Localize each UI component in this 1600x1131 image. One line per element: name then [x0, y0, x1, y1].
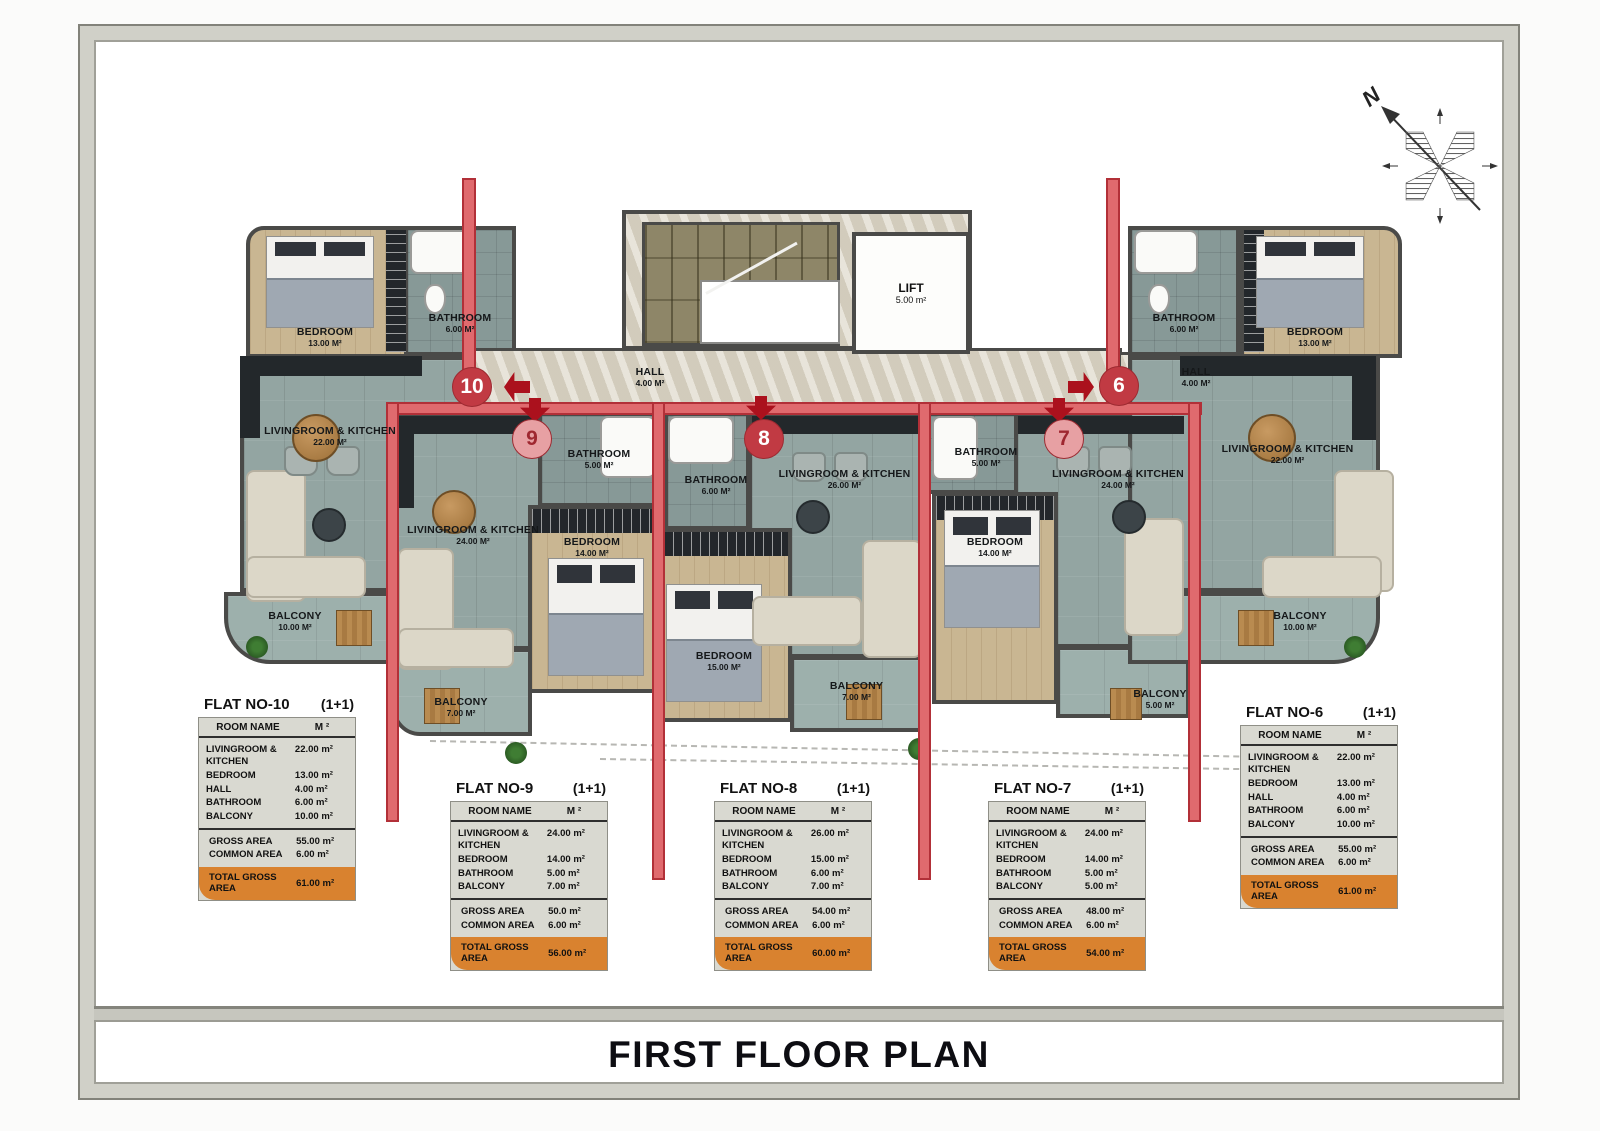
summary-row: GROSS AREA54.00 m²	[725, 906, 867, 918]
lift-room: LIFT 5.00 m²	[852, 232, 970, 354]
wardrobe-icon	[664, 532, 788, 556]
floor-plan-sheet: FIRST FLOOR PLAN N LIFT 5.00 m²	[0, 0, 1600, 1131]
total-gross-row: TOTAL GROSS AREA54.00 m²	[989, 937, 1145, 970]
room-cell: COMMON AREA	[1251, 857, 1338, 869]
label-balcony-flat9: BALCONY7.00 m²	[392, 696, 530, 718]
coffee-table-icon	[312, 508, 346, 542]
room-cell: BATHROOM	[1248, 805, 1337, 817]
room-row: BALCONY10.00 m²	[1248, 819, 1393, 831]
value-cell: 24.00 m²	[1085, 828, 1141, 853]
label-livingroom-flat7: LIVINGROOM & KITCHEN24.00 m²	[1038, 468, 1198, 490]
toilet-icon	[1148, 284, 1170, 314]
flat-number-label: FLAT NO-7	[994, 780, 1071, 797]
flat-table-rows: LIVINGROOM & KITCHEN22.00 m²BEDROOM13.00…	[1241, 746, 1397, 836]
flat-table-rows: LIVINGROOM & KITCHEN24.00 m²BEDROOM14.00…	[989, 822, 1145, 898]
label-bedroom-flat8: BEDROOM15.00 m²	[664, 650, 784, 672]
kitchen-counter-icon	[1018, 416, 1184, 434]
room-row: BALCONY10.00 m²	[206, 811, 351, 823]
value-cell: 6.00 m²	[296, 849, 351, 861]
value-cell: 55.00 m²	[1338, 844, 1393, 856]
room-name-header: ROOM NAME	[455, 806, 545, 817]
label-bathroom-flat9: BATHROOM5.00 m²	[538, 448, 660, 470]
room-row: LIVINGROOM & KITCHEN26.00 m²	[722, 828, 867, 853]
room-cell: GROSS AREA	[1251, 844, 1338, 856]
value-cell: 54.00 m²	[1086, 948, 1141, 959]
page-title: FIRST FLOOR PLAN	[94, 1034, 1504, 1076]
summary-row: COMMON AREA6.00 m²	[209, 849, 351, 861]
label-hall-flat6: HALL4.00 m²	[1146, 366, 1246, 388]
value-cell: 26.00 m²	[811, 828, 867, 853]
room-row: LIVINGROOM & KITCHEN22.00 m²	[206, 744, 351, 769]
room-row: LIVINGROOM & KITCHEN24.00 m²	[996, 828, 1141, 853]
value-cell: 24.00 m²	[547, 828, 603, 853]
flat-table-box: ROOM NAMEM ²LIVINGROOM & KITCHEN22.00 m²…	[198, 717, 356, 901]
flat-number-label: FLAT NO-8	[720, 780, 797, 797]
room-cell: LIVINGROOM & KITCHEN	[206, 744, 295, 769]
wardrobe-icon	[532, 509, 654, 533]
room-cell: BATHROOM	[458, 868, 547, 880]
room-row: BEDROOM13.00 m²	[1248, 778, 1393, 790]
value-cell: 5.00 m²	[1085, 881, 1141, 893]
label-bathroom-flat7: BATHROOM5.00 m²	[930, 446, 1042, 468]
area-summary: GROSS AREA55.00 m²COMMON AREA6.00 m²	[1241, 836, 1397, 875]
room-cell: LIVINGROOM & KITCHEN	[996, 828, 1085, 853]
label-balcony-flat7: BALCONY5.00 m²	[1090, 688, 1230, 710]
compass-icon: N	[1340, 78, 1510, 228]
label-bedroom-flat9: BEDROOM14.00 m²	[528, 536, 656, 558]
label-balcony-flat10: BALCONY10.00 m²	[195, 610, 395, 632]
value-cell: 15.00 m²	[811, 854, 867, 866]
room-name-header: ROOM NAME	[993, 806, 1083, 817]
flat-table-box: ROOM NAMEM ²LIVINGROOM & KITCHEN26.00 m²…	[714, 801, 872, 971]
flat-badge-10: 10	[452, 367, 492, 407]
unit-header: M ²	[809, 806, 867, 817]
summary-row: COMMON AREA6.00 m²	[1251, 857, 1393, 869]
flat-table-box: ROOM NAMEM ²LIVINGROOM & KITCHEN22.00 m²…	[1240, 725, 1398, 909]
flat-table-header: ROOM NAMEM ²	[715, 802, 871, 822]
room-cell: GROSS AREA	[725, 906, 812, 918]
room-cell: GROSS AREA	[461, 906, 548, 918]
room-row: BATHROOM6.00 m²	[1248, 805, 1393, 817]
room-row: LIVINGROOM & KITCHEN22.00 m²	[1248, 752, 1393, 777]
room-cell: COMMON AREA	[725, 920, 812, 932]
unit-header: M ²	[545, 806, 603, 817]
flat-badge-8: 8	[744, 419, 784, 459]
value-cell: 10.00 m²	[1337, 819, 1393, 831]
sofa-icon	[862, 540, 922, 658]
flat-info-table-10: FLAT NO-10(1+1)ROOM NAMEM ²LIVINGROOM & …	[198, 696, 356, 901]
room-cell: TOTAL GROSS AREA	[461, 942, 548, 964]
room-row: BEDROOM15.00 m²	[722, 854, 867, 866]
value-cell: 5.00 m²	[547, 868, 603, 880]
total-gross-row: TOTAL GROSS AREA61.00 m²	[199, 867, 355, 900]
value-cell: 50.0 m²	[548, 906, 603, 918]
flat-number-label: FLAT NO-6	[1246, 704, 1323, 721]
flat-table-rows: LIVINGROOM & KITCHEN26.00 m²BEDROOM15.00…	[715, 822, 871, 898]
value-cell: 13.00 m²	[295, 770, 351, 782]
value-cell: 56.00 m²	[548, 948, 603, 959]
kitchen-counter-icon	[1352, 356, 1376, 440]
room-cell: BALCONY	[206, 811, 295, 823]
room-cell: BALCONY	[1248, 819, 1337, 831]
value-cell: 6.00 m²	[1338, 857, 1393, 869]
area-summary: GROSS AREA55.00 m²COMMON AREA6.00 m²	[199, 828, 355, 867]
value-cell: 6.00 m²	[812, 920, 867, 932]
stair-landing	[700, 280, 840, 344]
bed-icon	[266, 236, 374, 328]
flat-table-header: ROOM NAMEM ²	[989, 802, 1145, 822]
flat-table-title: FLAT NO-9(1+1)	[450, 780, 608, 801]
flat-badge-9: 9	[512, 419, 552, 459]
room-row: BEDROOM13.00 m²	[206, 770, 351, 782]
room-row: BALCONY7.00 m²	[458, 881, 603, 893]
bed-icon	[548, 558, 644, 676]
room-cell: BALCONY	[458, 881, 547, 893]
room-row: BATHROOM6.00 m²	[722, 868, 867, 880]
room-cell: BEDROOM	[996, 854, 1085, 866]
room-cell: LIVINGROOM & KITCHEN	[1248, 752, 1337, 777]
coffee-table-icon	[1112, 500, 1146, 534]
label-balcony-flat6: BALCONY10.00 m²	[1215, 610, 1385, 632]
flat-badge-7: 7	[1044, 419, 1084, 459]
sofa-icon	[1262, 556, 1382, 598]
room-cell: BATHROOM	[722, 868, 811, 880]
flat-table-title: FLAT NO-7(1+1)	[988, 780, 1146, 801]
bathtub-icon	[1134, 230, 1198, 274]
value-cell: 4.00 m²	[1337, 792, 1393, 804]
label-balcony-flat8: BALCONY7.00 m²	[790, 680, 923, 702]
value-cell: 48.00 m²	[1086, 906, 1141, 918]
room-cell: COMMON AREA	[461, 920, 548, 932]
label-livingroom-flat10: LIVINGROOM & KITCHEN22.00 m²	[230, 425, 430, 447]
room-name-header: ROOM NAME	[1245, 730, 1335, 741]
value-cell: 61.00 m²	[296, 878, 351, 889]
bathtub-icon	[668, 416, 734, 464]
value-cell: 60.00 m²	[812, 948, 867, 959]
value-cell: 10.00 m²	[295, 811, 351, 823]
room-cell: HALL	[1248, 792, 1337, 804]
flat-info-table-9: FLAT NO-9(1+1)ROOM NAMEM ²LIVINGROOM & K…	[450, 780, 608, 971]
room-cell: TOTAL GROSS AREA	[1251, 880, 1338, 902]
lift-area: 5.00 m²	[896, 295, 927, 305]
room-cell: BATHROOM	[206, 797, 295, 809]
value-cell: 22.00 m²	[1337, 752, 1393, 777]
flat-number-label: FLAT NO-10	[204, 696, 290, 713]
room-cell: BALCONY	[722, 881, 811, 893]
label-bathroom-flat6: BATHROOM6.00 m²	[1128, 312, 1240, 334]
room-cell: BEDROOM	[458, 854, 547, 866]
value-cell: 6.00 m²	[295, 797, 351, 809]
flat-table-title: FLAT NO-6(1+1)	[1240, 704, 1398, 725]
summary-row: GROSS AREA48.00 m²	[999, 906, 1141, 918]
room-cell: TOTAL GROSS AREA	[725, 942, 812, 964]
bed-icon	[666, 584, 762, 702]
summary-row: GROSS AREA55.00 m²	[1251, 844, 1393, 856]
flat-table-box: ROOM NAMEM ²LIVINGROOM & KITCHEN24.00 m²…	[450, 801, 608, 971]
label-livingroom-flat6: LIVINGROOM & KITCHEN22.00 m²	[1200, 443, 1375, 465]
kitchen-counter-icon	[240, 356, 422, 376]
room-row: BATHROOM5.00 m²	[996, 868, 1141, 880]
red-wall	[386, 402, 1202, 415]
room-cell: COMMON AREA	[209, 849, 296, 861]
room-cell: COMMON AREA	[999, 920, 1086, 932]
coffee-table-icon	[796, 500, 830, 534]
label-livingroom-flat8: LIVINGROOM & KITCHEN26.00 m²	[762, 468, 927, 490]
room-row: HALL4.00 m²	[206, 784, 351, 796]
room-cell: GROSS AREA	[209, 836, 296, 848]
label-bedroom-flat6: BEDROOM13.00 m²	[1235, 326, 1395, 348]
flat-type-label: (1+1)	[321, 696, 354, 712]
room-cell: BEDROOM	[722, 854, 811, 866]
label-bathroom-flat10: BATHROOM6.00 m²	[404, 312, 516, 334]
room-row: BALCONY7.00 m²	[722, 881, 867, 893]
room-name-header: ROOM NAME	[203, 722, 293, 733]
room-row: BALCONY5.00 m²	[996, 881, 1141, 893]
label-bathroom-flat8: BATHROOM6.00 m²	[660, 474, 772, 496]
room-row: BEDROOM14.00 m²	[458, 854, 603, 866]
room-cell: BALCONY	[996, 881, 1085, 893]
bed-icon	[1256, 236, 1364, 328]
value-cell: 54.00 m²	[812, 906, 867, 918]
value-cell: 4.00 m²	[295, 784, 351, 796]
flat-number-label: FLAT NO-9	[456, 780, 533, 797]
label-bedroom-flat10: BEDROOM13.00 m²	[250, 326, 400, 348]
room-cell: TOTAL GROSS AREA	[209, 872, 296, 894]
value-cell: 61.00 m²	[1338, 886, 1393, 897]
flat-info-table-8: FLAT NO-8(1+1)ROOM NAMEM ²LIVINGROOM & K…	[714, 780, 872, 971]
summary-row: COMMON AREA6.00 m²	[461, 920, 603, 932]
room-row: BATHROOM6.00 m²	[206, 797, 351, 809]
flat-type-label: (1+1)	[1111, 780, 1144, 796]
summary-row: COMMON AREA6.00 m²	[725, 920, 867, 932]
flat-table-header: ROOM NAMEM ²	[199, 718, 355, 738]
value-cell: 6.00 m²	[811, 868, 867, 880]
flat-info-table-6: FLAT NO-6(1+1)ROOM NAMEM ²LIVINGROOM & K…	[1240, 704, 1398, 909]
value-cell: 7.00 m²	[547, 881, 603, 893]
room-row: BEDROOM14.00 m²	[996, 854, 1141, 866]
unit-header: M ²	[1335, 730, 1393, 741]
unit-header: M ²	[293, 722, 351, 733]
flat-badge-6: 6	[1099, 366, 1139, 406]
sofa-icon	[1124, 518, 1184, 636]
plant-icon	[1344, 636, 1366, 658]
summary-row: COMMON AREA6.00 m²	[999, 920, 1141, 932]
sofa-icon	[752, 596, 862, 646]
room-cell: HALL	[206, 784, 295, 796]
flat-table-box: ROOM NAMEM ²LIVINGROOM & KITCHEN24.00 m²…	[988, 801, 1146, 971]
flat-type-label: (1+1)	[1363, 704, 1396, 720]
value-cell: 14.00 m²	[547, 854, 603, 866]
value-cell: 6.00 m²	[1337, 805, 1393, 817]
room-cell: BEDROOM	[206, 770, 295, 782]
flat-table-header: ROOM NAMEM ²	[1241, 726, 1397, 746]
value-cell: 5.00 m²	[1085, 868, 1141, 880]
value-cell: 13.00 m²	[1337, 778, 1393, 790]
label-livingroom-flat9: LIVINGROOM & KITCHEN24.00 m²	[398, 524, 548, 546]
plant-icon	[505, 742, 527, 764]
room-row: BATHROOM5.00 m²	[458, 868, 603, 880]
flat-table-title: FLAT NO-8(1+1)	[714, 780, 872, 801]
flat-table-rows: LIVINGROOM & KITCHEN22.00 m²BEDROOM13.00…	[199, 738, 355, 828]
flat-table-rows: LIVINGROOM & KITCHEN24.00 m²BEDROOM14.00…	[451, 822, 607, 898]
area-summary: GROSS AREA54.00 m²COMMON AREA6.00 m²	[715, 898, 871, 937]
total-gross-row: TOTAL GROSS AREA61.00 m²	[1241, 875, 1397, 908]
value-cell: 6.00 m²	[1086, 920, 1141, 932]
flat-info-table-7: FLAT NO-7(1+1)ROOM NAMEM ²LIVINGROOM & K…	[988, 780, 1146, 971]
flat-type-label: (1+1)	[573, 780, 606, 796]
lift-label: LIFT	[898, 281, 923, 295]
value-cell: 22.00 m²	[295, 744, 351, 769]
value-cell: 7.00 m²	[811, 881, 867, 893]
frame-divider	[94, 1006, 1504, 1022]
room-cell: LIVINGROOM & KITCHEN	[722, 828, 811, 853]
flat-table-title: FLAT NO-10(1+1)	[198, 696, 356, 717]
area-summary: GROSS AREA50.0 m²COMMON AREA6.00 m²	[451, 898, 607, 937]
summary-row: GROSS AREA55.00 m²	[209, 836, 351, 848]
area-summary: GROSS AREA48.00 m²COMMON AREA6.00 m²	[989, 898, 1145, 937]
room-row: LIVINGROOM & KITCHEN24.00 m²	[458, 828, 603, 853]
total-gross-row: TOTAL GROSS AREA60.00 m²	[715, 937, 871, 970]
label-bedroom-flat7: BEDROOM14.00 m²	[932, 536, 1058, 558]
flat-type-label: (1+1)	[837, 780, 870, 796]
total-gross-row: TOTAL GROSS AREA56.00 m²	[451, 937, 607, 970]
plant-icon	[246, 636, 268, 658]
value-cell: 55.00 m²	[296, 836, 351, 848]
toilet-icon	[424, 284, 446, 314]
room-cell: GROSS AREA	[999, 906, 1086, 918]
unit-header: M ²	[1083, 806, 1141, 817]
sofa-icon	[398, 628, 514, 668]
value-cell: 6.00 m²	[548, 920, 603, 932]
sofa-icon	[246, 556, 366, 598]
room-cell: BEDROOM	[1248, 778, 1337, 790]
room-cell: LIVINGROOM & KITCHEN	[458, 828, 547, 853]
room-cell: TOTAL GROSS AREA	[999, 942, 1086, 964]
label-hall-flat10: HALL4.00 m²	[600, 366, 700, 388]
room-cell: BATHROOM	[996, 868, 1085, 880]
bed-icon	[944, 510, 1040, 628]
corridor-floor	[470, 348, 1122, 410]
room-name-header: ROOM NAME	[719, 806, 809, 817]
flat-table-header: ROOM NAMEM ²	[451, 802, 607, 822]
summary-row: GROSS AREA50.0 m²	[461, 906, 603, 918]
room-row: HALL4.00 m²	[1248, 792, 1393, 804]
value-cell: 14.00 m²	[1085, 854, 1141, 866]
